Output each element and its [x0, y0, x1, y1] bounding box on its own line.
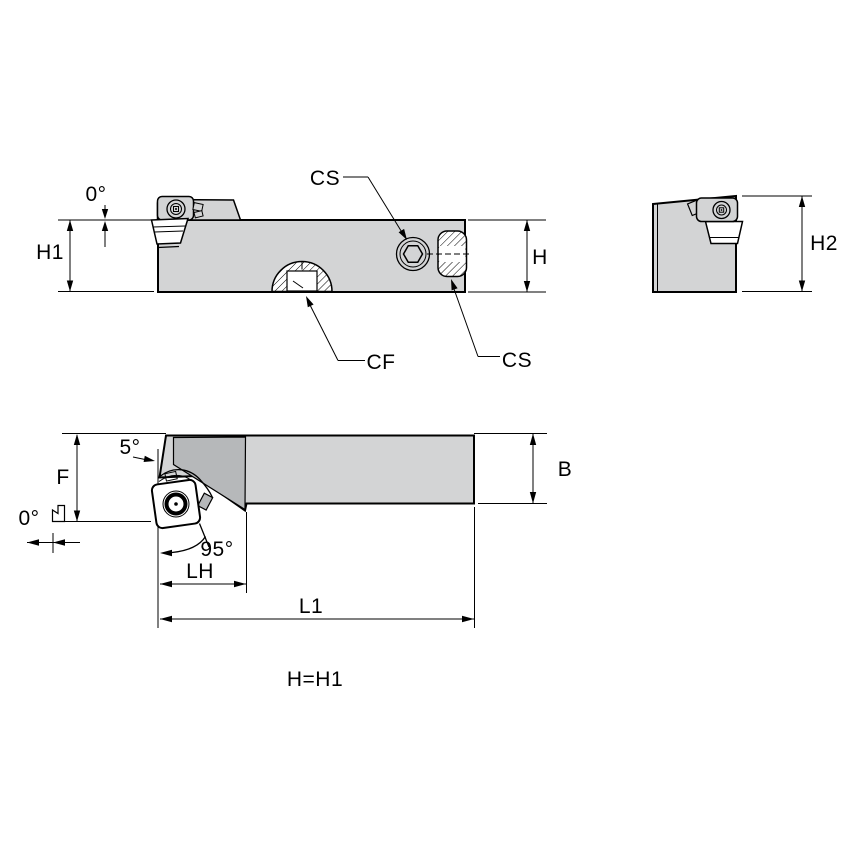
h1-arrow-top: [67, 220, 73, 231]
h-arrow-top: [524, 220, 530, 231]
zero-angle-arrow-down: [102, 209, 108, 219]
lh-arrow-left: [160, 581, 172, 587]
h-arrow-bottom: [524, 281, 530, 292]
cs-counterbore-label: CS: [502, 349, 532, 372]
five-angle-arrow: [144, 456, 155, 462]
approach-angle-arrow: [160, 550, 172, 556]
h-dimension-label: H: [532, 246, 548, 269]
end-view: H2: [653, 196, 838, 292]
h2-arrow-top: [799, 196, 805, 207]
tool-holder-technical-drawing: 0° H1 H CS CS CF: [0, 0, 854, 854]
drawing-canvas: 0° H1 H CS CS CF: [0, 0, 854, 854]
cs-screw-label: CS: [310, 167, 340, 190]
b-arrow-top: [530, 434, 536, 446]
equivalence-note: H=H1: [287, 668, 343, 691]
five-angle-label: 5°: [119, 436, 140, 459]
h2-dimension-label: H2: [810, 232, 838, 255]
f-arrow-bottom: [74, 511, 80, 522]
lh-dimension-label: LH: [186, 560, 214, 583]
l1-arrow-left: [160, 616, 172, 622]
edge-profile-symbol: [53, 506, 65, 522]
l1-arrow-right: [462, 616, 474, 622]
insert-end-profile: [706, 222, 743, 244]
clamp-nose-detail: [194, 211, 203, 218]
h2-arrow-bottom: [799, 281, 805, 292]
l1-dimension-label: L1: [299, 595, 323, 618]
shim-detail: [198, 493, 213, 510]
approach-angle-label: 95°: [200, 538, 233, 561]
clamp-nose-detail: [193, 203, 203, 212]
cs-counterbore-leader: [454, 289, 478, 357]
clamp-screw-end-center: [721, 209, 723, 211]
plan-zero-angle-label: 0°: [18, 507, 39, 530]
h1-dimension-label: H1: [36, 241, 64, 264]
cf-leader: [310, 305, 338, 361]
b-arrow-bottom: [530, 492, 536, 504]
plan-view: 5° 95° 0° F B LH: [18, 434, 572, 629]
cf-label: CF: [367, 351, 396, 374]
side-view: 0° H1 H CS CS CF: [36, 167, 548, 374]
zero-angle-arrow-up: [102, 221, 108, 231]
f-arrow-top: [74, 434, 80, 445]
coolant-port-slot: [287, 271, 317, 291]
lh-arrow-right: [234, 581, 246, 587]
f-dimension-label: F: [56, 466, 69, 489]
insert-screw-center: [174, 502, 178, 506]
zero-rake-arrow-right: [53, 539, 65, 545]
counterbore-bore: [439, 246, 465, 262]
b-dimension-label: B: [558, 458, 573, 481]
cf-leader-arrow: [306, 296, 314, 307]
clamp-screw-center: [175, 208, 177, 210]
side-zero-angle-label: 0°: [85, 183, 106, 206]
zero-rake-arrow-left: [27, 539, 39, 545]
h1-arrow-bottom: [67, 281, 73, 292]
